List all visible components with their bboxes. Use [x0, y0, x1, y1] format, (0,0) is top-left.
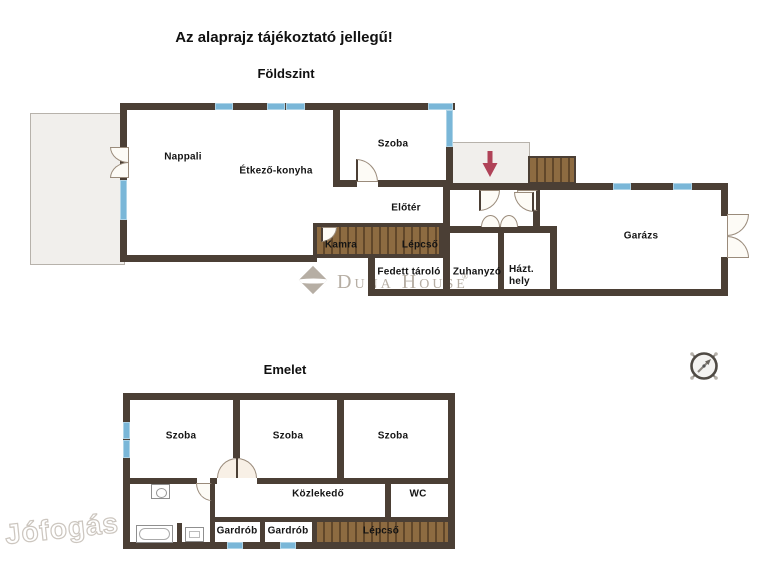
ground-floor-heading: Földszint [257, 66, 314, 81]
window [286, 103, 305, 110]
corner-window [428, 103, 453, 110]
door-arc [356, 159, 378, 182]
window [267, 103, 285, 110]
floorplan-canvas: Az alaprajz tájékoztató jellegű! Földszi… [0, 0, 767, 575]
wall [550, 226, 557, 296]
wall [550, 289, 728, 296]
wall [378, 180, 453, 187]
wall [385, 484, 391, 517]
window [120, 180, 127, 220]
window [673, 183, 692, 190]
shower-icon [185, 527, 204, 542]
corner-window [446, 110, 453, 147]
wall [123, 393, 455, 400]
wall [177, 523, 182, 542]
room-label-gardrob-1: Gardrób [217, 526, 258, 537]
room-label-lepcso: Lépcső [402, 240, 438, 251]
room-label-eloter: Előtér [391, 203, 421, 214]
exterior-stairs [528, 156, 576, 184]
wall [233, 400, 240, 458]
room-label-gardrob-2: Gardrób [268, 526, 309, 537]
room-label-nappali: Nappali [164, 152, 202, 163]
upper-floor-heading: Emelet [264, 362, 307, 377]
jofogas-watermark: Jófogás [3, 507, 120, 551]
room-label-lepcso-upper: Lépcső [363, 526, 399, 537]
window [280, 542, 296, 549]
bathtub-icon [136, 525, 173, 543]
garage-door-arc [727, 214, 749, 236]
wall [260, 517, 265, 542]
window [613, 183, 631, 190]
wall [333, 107, 340, 183]
room-label-etkezo-konyha: Étkező-konyha [239, 166, 312, 177]
room-label-zuhanyzo: Zuhanyzó [453, 267, 501, 278]
sink-icon [151, 484, 170, 499]
window [123, 440, 130, 458]
window [123, 422, 130, 439]
room-label-kozlekedo: Közlekedő [292, 489, 344, 500]
door-arc [481, 215, 500, 227]
wall [257, 478, 448, 484]
dunahouse-logo-icon [299, 266, 327, 294]
bathtub-inner [139, 528, 170, 540]
wall [212, 517, 448, 522]
door-arc [514, 192, 534, 212]
compass-icon [683, 345, 725, 387]
sink-basin [156, 488, 167, 498]
entrance-arrow-icon [481, 150, 499, 178]
disclaimer-title: Az alaprajz tájékoztató jellegű! [175, 29, 393, 46]
entrance-door-arc [479, 190, 500, 211]
wall [443, 190, 450, 293]
room-label-garazs: Garázs [624, 231, 659, 242]
room-label-szoba-3: Szoba [378, 431, 408, 442]
garage-door-arc [727, 236, 749, 258]
wall [120, 255, 317, 262]
window [227, 542, 243, 549]
wall [446, 146, 453, 187]
door-arc [500, 215, 518, 227]
room-label-szoba: Szoba [378, 139, 408, 150]
door-arc [196, 483, 212, 501]
wall [333, 180, 357, 187]
terrace-area [30, 113, 125, 265]
wall [498, 233, 504, 293]
wall [448, 393, 455, 549]
shower-inner [189, 531, 200, 538]
wall [721, 190, 728, 216]
room-label-wc: WC [409, 489, 426, 500]
room-label-kamra: Kamra [325, 240, 357, 251]
wall [337, 400, 344, 478]
room-label-szoba-2: Szoba [273, 431, 303, 442]
wall [210, 517, 215, 542]
wall [312, 517, 317, 542]
wall [123, 393, 130, 549]
room-label-hazt-hely: Házt. hely [509, 264, 534, 287]
window [215, 103, 233, 110]
room-label-fedett-tarolo: Fedett tároló [377, 267, 440, 278]
wall [236, 458, 238, 478]
wall [368, 289, 558, 296]
room-label-szoba-1: Szoba [166, 431, 196, 442]
